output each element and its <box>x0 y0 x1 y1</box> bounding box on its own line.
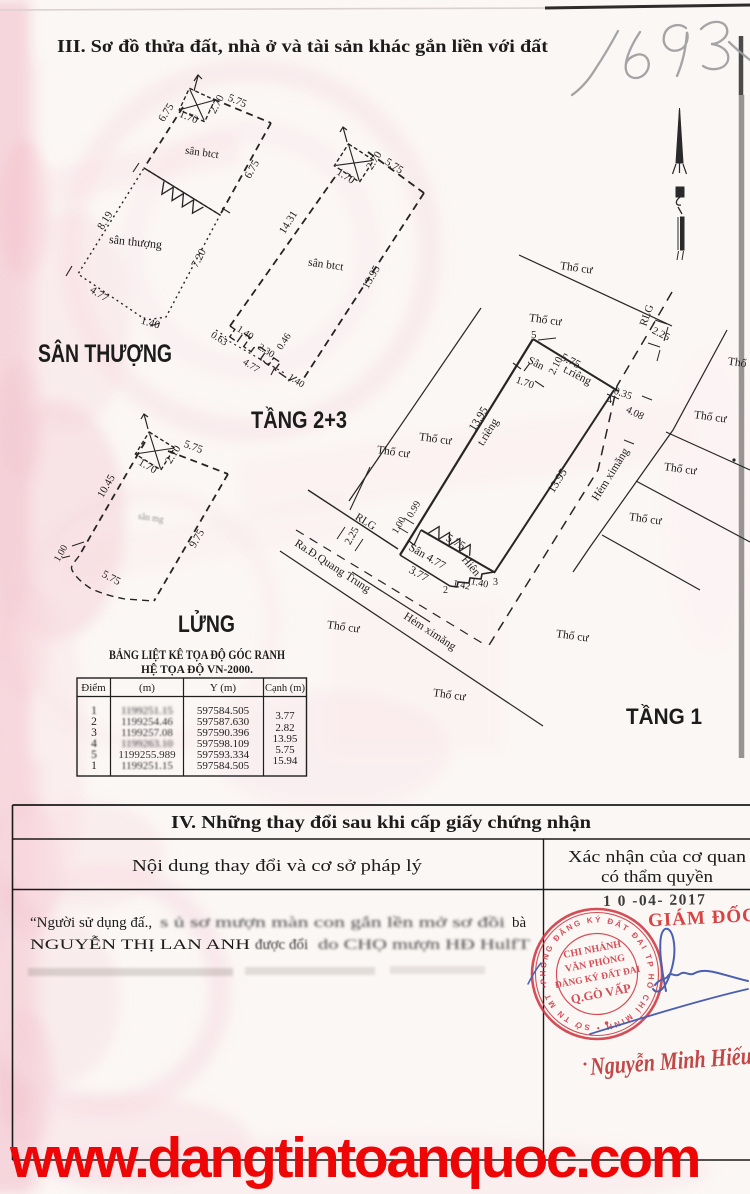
svg-text:3.77: 3.77 <box>407 564 431 585</box>
svg-text:được đổi: được đổi <box>255 937 308 953</box>
svg-text:1.40: 1.40 <box>470 576 489 590</box>
svg-text:0.35: 0.35 <box>612 386 633 403</box>
svg-text:1: 1 <box>91 760 97 772</box>
svg-text:SÂN THƯỢNG: SÂN THƯỢNG <box>38 338 172 368</box>
svg-text:Thổ cư: Thổ cư <box>528 311 563 329</box>
svg-text:1.42: 1.42 <box>452 578 471 592</box>
svg-text:3: 3 <box>493 577 498 588</box>
svg-text:Nguyễn Minh Hiếu: Nguyễn Minh Hiếu <box>588 1043 750 1081</box>
svg-text:2.10: 2.10 <box>163 443 184 466</box>
svg-text:LỬNG: LỬNG <box>178 609 235 638</box>
svg-text:8.19: 8.19 <box>95 209 116 232</box>
svg-text:NGUYỄN THỊ LAN ANH: NGUYỄN THỊ LAN ANH <box>30 935 250 953</box>
svg-text:TẦNG 2+3: TẦNG 2+3 <box>251 406 347 434</box>
svg-text:3.77: 3.77 <box>275 710 295 722</box>
svg-text:1 0 -04- 2017: 1 0 -04- 2017 <box>603 891 707 910</box>
svg-text:do CHỌ mượn HĐ HulfT: do CHỌ mượn HĐ HulfT <box>318 937 530 953</box>
svg-text:sân thượng: sân thượng <box>108 232 162 251</box>
svg-text:IV. Những thay đổi sau khi cấp: IV. Những thay đổi sau khi cấp giấy chứn… <box>171 812 591 832</box>
svg-text:Nội dung thay đổi và cơ sở phá: Nội dung thay đổi và cơ sở pháp lý <box>132 856 423 875</box>
svg-text:1.70: 1.70 <box>136 456 159 476</box>
svg-text:Xác nhận của cơ quan: Xác nhận của cơ quan <box>568 847 746 866</box>
svg-text:1.70: 1.70 <box>514 375 535 392</box>
svg-text:Thổ: Thổ <box>727 355 747 370</box>
svg-text:15.94: 15.94 <box>273 755 298 767</box>
svg-text:bà: bà <box>512 915 527 931</box>
svg-text:“Người sử dụng đấ.,: “Người sử dụng đấ., <box>30 915 152 931</box>
svg-text:Cạnh (m): Cạnh (m) <box>265 683 305 694</box>
svg-text:Điểm: Điểm <box>81 682 106 694</box>
svg-text:Thổ cư: Thổ cư <box>555 627 590 645</box>
svg-text:0.63: 0.63 <box>209 330 230 349</box>
svg-text:2: 2 <box>443 585 448 596</box>
svg-text:2.70: 2.70 <box>364 149 385 172</box>
svg-text:Ra.Đ.Quang Trung: Ra.Đ.Quang Trung <box>292 537 372 595</box>
svg-text:Y (m): Y (m) <box>210 682 237 694</box>
svg-text:(m): (m) <box>139 682 155 694</box>
svg-text:597584.505: 597584.505 <box>197 760 250 772</box>
svg-text:1.70: 1.70 <box>177 108 200 127</box>
svg-text:www.dangtintoanquoc.com: www.dangtintoanquoc.com <box>9 1126 699 1190</box>
svg-text:1199251.15: 1199251.15 <box>121 760 173 772</box>
svg-text:5: 5 <box>531 329 537 341</box>
svg-text:5.75: 5.75 <box>226 92 249 111</box>
svg-text:Thổ cư: Thổ cư <box>559 259 594 277</box>
svg-text:1.40: 1.40 <box>286 372 307 391</box>
svg-text:1.40: 1.40 <box>235 324 256 343</box>
svg-text:0.99: 0.99 <box>405 499 423 520</box>
svg-text:5.75: 5.75 <box>182 438 205 456</box>
svg-text:BẢNG LIỆT KÊ TỌA ĐỘ GÓC RANH: BẢNG LIỆT KÊ TỌA ĐỘ GÓC RANH <box>109 648 285 662</box>
svg-text:HỆ TỌA ĐỘ VN-2000.: HỆ TỌA ĐỘ VN-2000. <box>141 662 253 676</box>
svg-text:có thẩm quyền: có thẩm quyền <box>601 867 713 886</box>
svg-text:1.00: 1.00 <box>390 515 408 536</box>
svg-text:TẦNG 1: TẦNG 1 <box>626 704 702 729</box>
svg-text:III. Sơ đồ thửa đất, nhà ở và: III. Sơ đồ thửa đất, nhà ở và tài sản kh… <box>57 36 548 56</box>
svg-text:sân mg: sân mg <box>137 511 164 525</box>
svg-text:4: 4 <box>607 395 612 406</box>
svg-text:7.20: 7.20 <box>189 247 209 270</box>
svg-text:Sân: Sân <box>526 354 547 372</box>
svg-text:Thổ cư: Thổ cư <box>628 510 663 528</box>
svg-text:Hiên: Hiên <box>459 554 483 579</box>
svg-text:sân btct: sân btct <box>307 257 345 274</box>
svg-text:6.75: 6.75 <box>242 158 262 181</box>
svg-text:s ủ sơ mượn màn con gắn lền mở: s ủ sơ mượn màn con gắn lền mở sơ đồi <box>160 915 505 931</box>
